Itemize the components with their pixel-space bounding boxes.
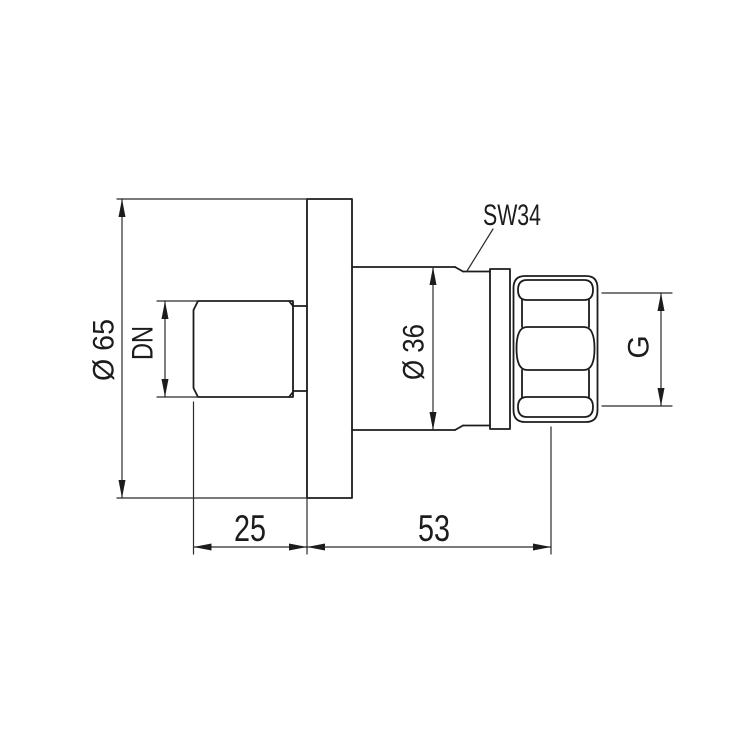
callout-sw34: SW34 bbox=[467, 199, 541, 271]
dimension-g: G bbox=[602, 293, 672, 406]
dia36-arrow-down bbox=[430, 412, 437, 430]
hex-chamfer-lines bbox=[455, 267, 463, 430]
sw34-leader-line bbox=[467, 229, 493, 271]
dim53-arrow-right bbox=[533, 544, 551, 551]
nut-bottom-facet bbox=[518, 397, 593, 417]
dn-extension-lines bbox=[157, 301, 293, 397]
g-arrow-up bbox=[658, 293, 665, 311]
dimension-dn: DN bbox=[127, 301, 294, 397]
dim53-arrow-left bbox=[307, 544, 325, 551]
g-label: G bbox=[623, 335, 656, 358]
dimension-25-53: 25 53 bbox=[194, 402, 552, 554]
g-arrow-down bbox=[658, 388, 665, 406]
nut-middle-facet bbox=[517, 327, 595, 370]
dimension-dia-65: Ø 65 bbox=[88, 199, 308, 498]
collar-band-outline bbox=[490, 269, 510, 429]
dn-arrow-down bbox=[162, 379, 169, 397]
dia65-arrow-up bbox=[119, 199, 126, 217]
nut-facet-edges bbox=[522, 300, 589, 397]
dimension-dia-36: Ø 36 bbox=[398, 267, 437, 430]
dim25-arrow-right bbox=[289, 544, 307, 551]
flange-outline bbox=[307, 199, 352, 498]
dia36-arrow-up bbox=[430, 267, 437, 285]
dim53-label: 53 bbox=[418, 508, 450, 549]
union-nut-outline bbox=[514, 276, 598, 422]
dn-arrow-up bbox=[162, 301, 169, 319]
dim25-arrow-left bbox=[194, 544, 212, 551]
sw34-label: SW34 bbox=[483, 199, 541, 232]
thread-spud-outline bbox=[194, 301, 294, 397]
part-outline bbox=[194, 199, 598, 498]
nut-top-facet bbox=[518, 280, 593, 300]
dia65-label: Ø 65 bbox=[88, 319, 121, 381]
dia65-arrow-down bbox=[119, 480, 126, 498]
technical-drawing-canvas: Ø 65 DN Ø 36 G 25 53 SW34 bbox=[0, 0, 746, 746]
technical-drawing-page: Ø 65 DN Ø 36 G 25 53 SW34 bbox=[0, 0, 746, 746]
hex-section-lines bbox=[463, 272, 490, 426]
neck-lines bbox=[293, 306, 307, 391]
dia36-label: Ø 36 bbox=[398, 324, 431, 380]
dn-label: DN bbox=[127, 326, 160, 360]
dim25-label: 25 bbox=[234, 508, 266, 549]
